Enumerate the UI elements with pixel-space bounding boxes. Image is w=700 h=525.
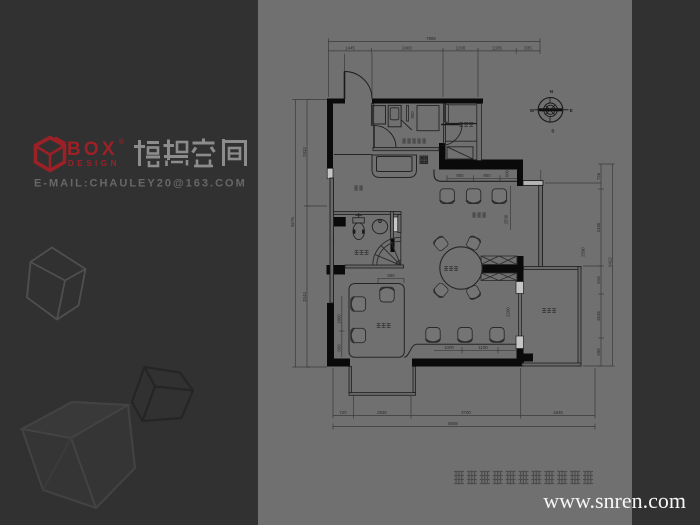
svg-text:1800: 1800: [337, 314, 342, 324]
svg-text:2400: 2400: [402, 46, 412, 51]
svg-text:2530: 2530: [503, 214, 508, 224]
svg-text:900: 900: [456, 173, 464, 178]
svg-text:635: 635: [524, 46, 532, 51]
svg-text:3536: 3536: [596, 311, 601, 321]
svg-text:2930: 2930: [377, 410, 387, 415]
svg-text:BOX: BOX: [67, 139, 118, 160]
svg-text:1200: 1200: [456, 46, 466, 51]
svg-text:1335: 1335: [492, 46, 502, 51]
svg-text:2590: 2590: [581, 247, 586, 257]
svg-text:6422: 6422: [608, 257, 613, 267]
svg-text:900: 900: [483, 173, 491, 178]
svg-text:600: 600: [337, 344, 342, 352]
svg-text:1445: 1445: [345, 46, 355, 51]
svg-text:1000: 1000: [444, 345, 454, 350]
svg-text:8505: 8505: [448, 421, 458, 426]
svg-text:3243: 3243: [302, 292, 307, 302]
svg-text:618: 618: [596, 276, 601, 284]
svg-text:600: 600: [505, 169, 510, 177]
svg-text:2456: 2456: [596, 222, 601, 232]
svg-text:698: 698: [596, 348, 601, 356]
svg-text:3700: 3700: [461, 410, 471, 415]
svg-text:1945: 1945: [553, 410, 563, 415]
svg-text:W: W: [530, 108, 535, 114]
svg-text:E-MAIL:CHAULEY20@163.COM: E-MAIL:CHAULEY20@163.COM: [34, 178, 247, 190]
svg-text:www.snren.com: www.snren.com: [543, 488, 686, 513]
svg-text:2200: 2200: [506, 307, 511, 317]
svg-text:1100: 1100: [478, 345, 488, 350]
svg-text:735: 735: [596, 172, 601, 180]
svg-text:N: N: [550, 89, 554, 95]
svg-text:550: 550: [387, 273, 395, 278]
svg-text:5675: 5675: [290, 217, 295, 227]
svg-text:720: 720: [339, 410, 347, 415]
svg-text:2933: 2933: [302, 147, 307, 157]
svg-text:DESIGN: DESIGN: [68, 159, 120, 168]
svg-text:®: ®: [119, 138, 125, 146]
svg-text:900: 900: [410, 111, 415, 119]
svg-text:7985: 7985: [426, 36, 436, 41]
